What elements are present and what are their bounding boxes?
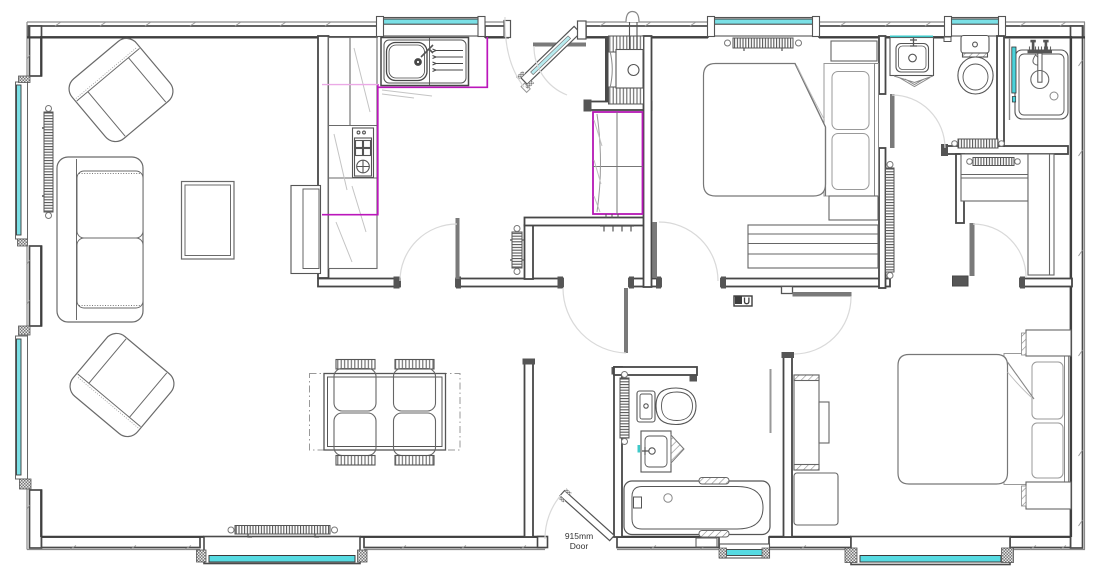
svg-text:Door: Door xyxy=(570,541,589,551)
svg-text:915mm: 915mm xyxy=(565,531,593,541)
